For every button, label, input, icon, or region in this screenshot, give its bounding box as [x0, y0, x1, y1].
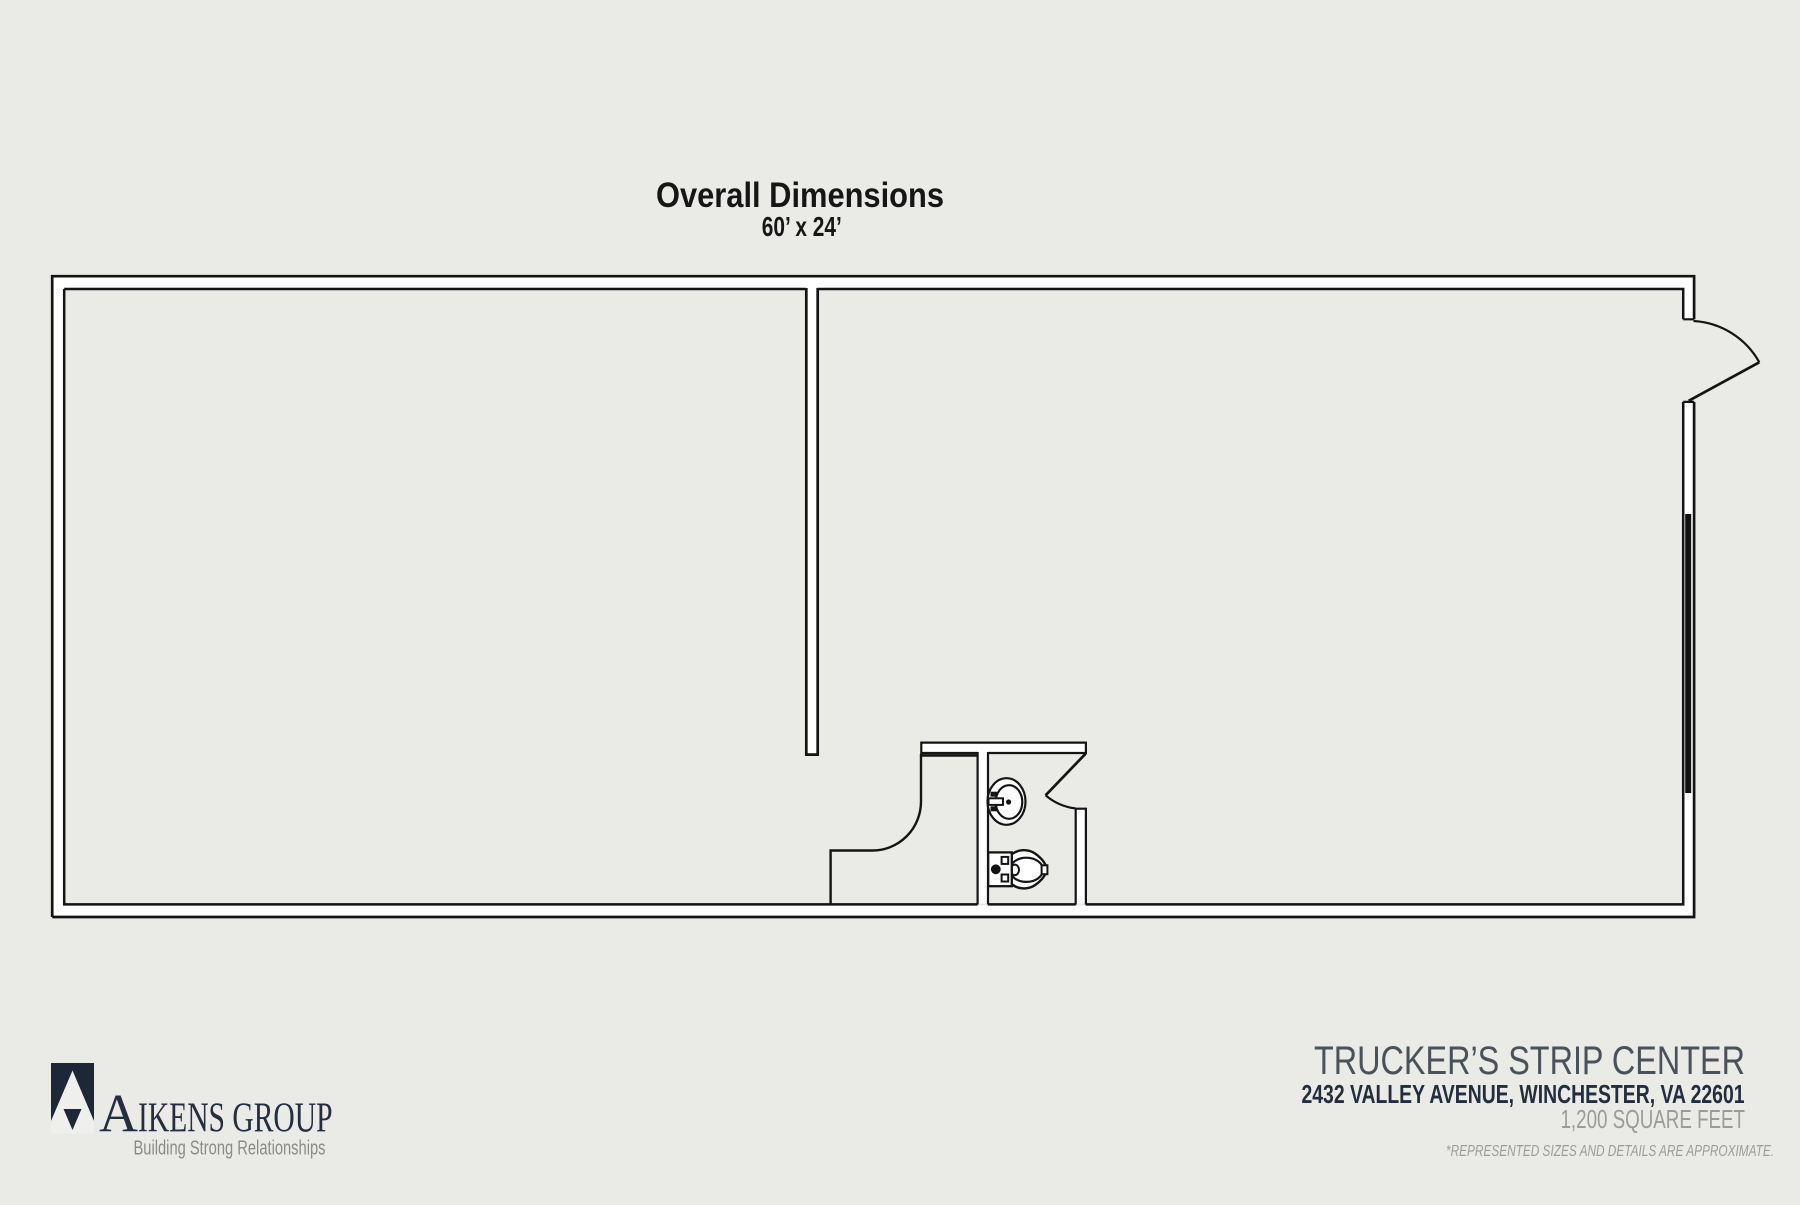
svg-text:1,200 SQUARE FEET: 1,200 SQUARE FEET [1561, 1106, 1746, 1134]
svg-text:Building Strong Relationships: Building Strong Relationships [134, 1137, 326, 1160]
svg-text:2432 VALLEY AVENUE, WINCHESTER: 2432 VALLEY AVENUE, WINCHESTER, VA 22601 [1302, 1081, 1745, 1109]
svg-text:Overall Dimensions: Overall Dimensions [656, 176, 944, 215]
svg-text:*REPRESENTED SIZES AND DETAILS: *REPRESENTED SIZES AND DETAILS ARE APPRO… [1446, 1143, 1774, 1160]
svg-text:60’ x 24’: 60’ x 24’ [762, 211, 842, 242]
svg-text:A: A [99, 1084, 138, 1144]
svg-text:TRUCKER’S STRIP CENTER: TRUCKER’S STRIP CENTER [1314, 1039, 1745, 1083]
svg-text:IKENS GROUP: IKENS GROUP [138, 1095, 333, 1142]
